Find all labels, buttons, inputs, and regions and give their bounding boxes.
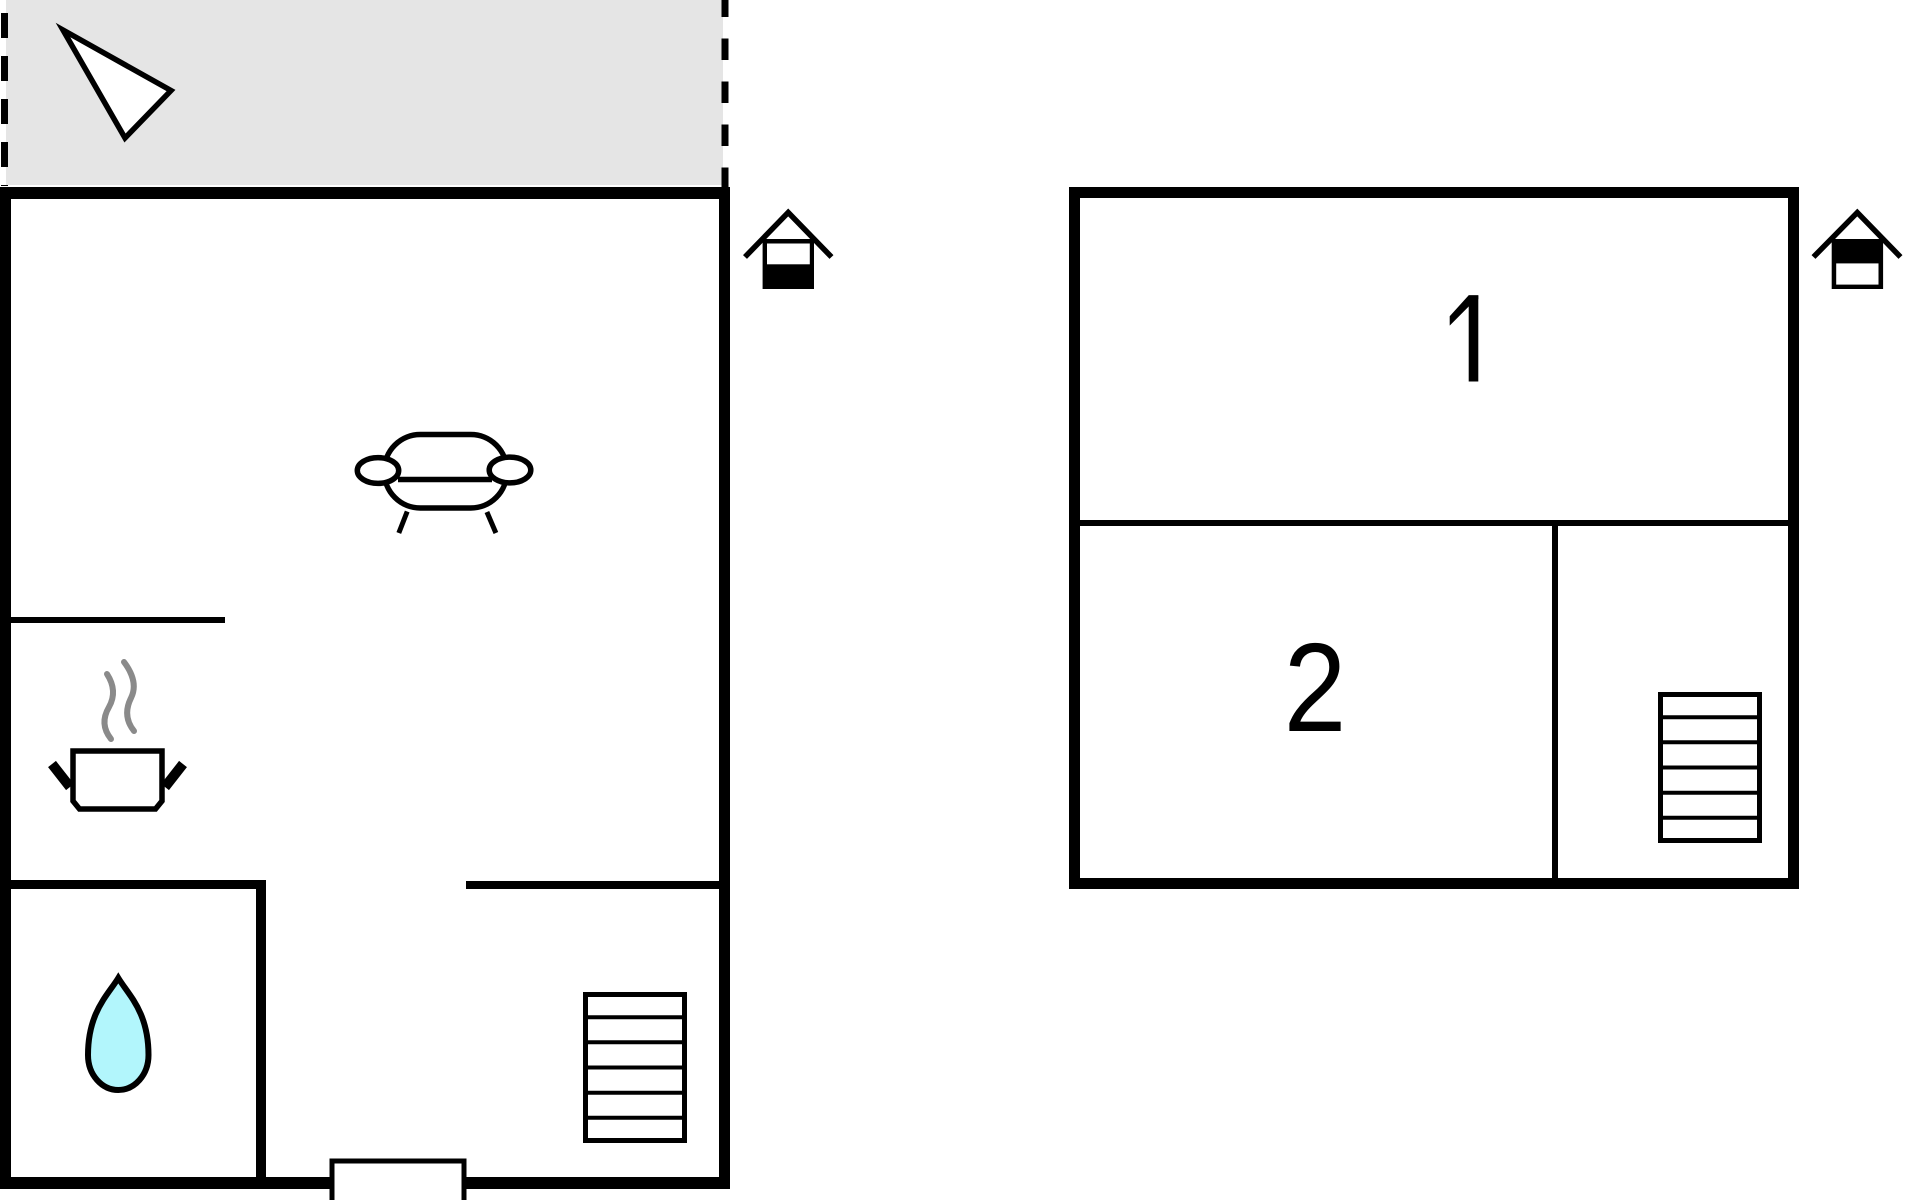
svg-text:2: 2 — [1284, 617, 1347, 758]
